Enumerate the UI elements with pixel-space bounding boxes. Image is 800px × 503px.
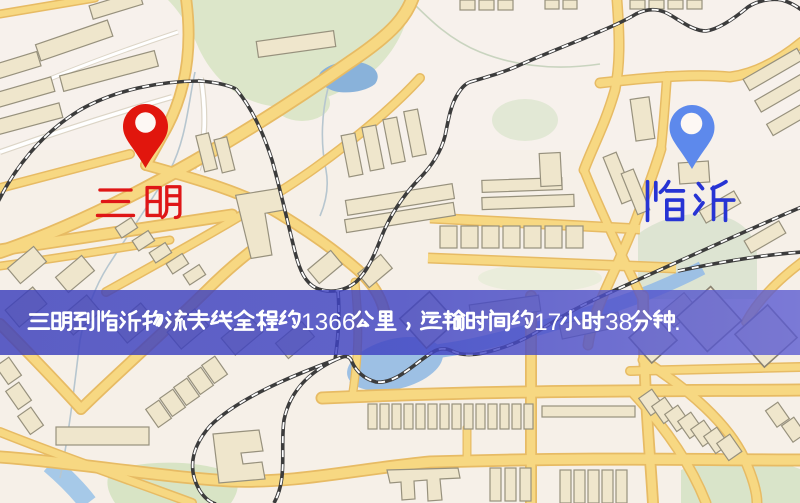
svg-text:38: 38 <box>605 309 632 336</box>
svg-text:1366: 1366 <box>301 309 356 336</box>
svg-text:.: . <box>674 309 681 336</box>
svg-text:17: 17 <box>534 309 561 336</box>
